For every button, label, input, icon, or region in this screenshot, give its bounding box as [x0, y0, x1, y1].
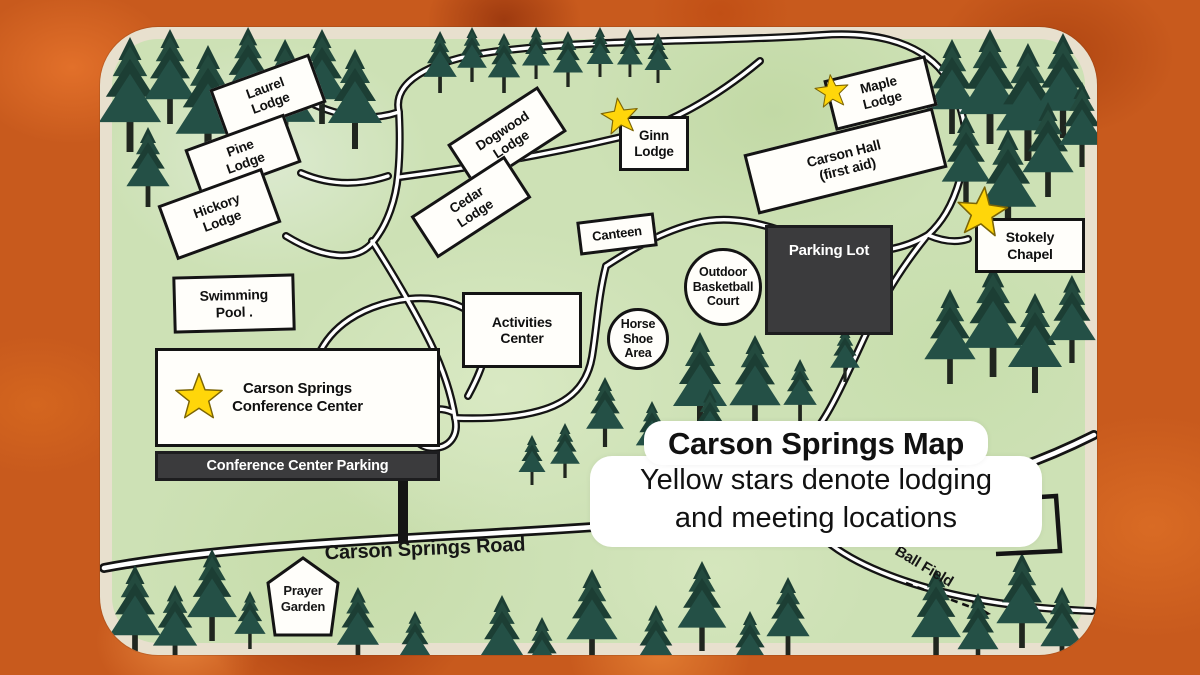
- tree-icon: [523, 617, 561, 655]
- carson-springs-map: Laurel Lodge Pine Lodge Hickory Lodge Do…: [100, 27, 1097, 655]
- legend-box: Carson Springs Map Yellow stars denote l…: [590, 421, 1042, 547]
- tree-icon: [234, 591, 265, 649]
- tree-icon: [678, 561, 727, 651]
- tree-icon: [153, 585, 197, 655]
- tree-icon: [731, 611, 769, 655]
- tree-icon: [729, 335, 780, 430]
- tree-icon: [924, 289, 975, 384]
- tree-icon: [617, 29, 643, 77]
- tree-icon: [942, 115, 991, 205]
- building-activities-center: Activities Center: [462, 292, 582, 368]
- tree-icon: [337, 587, 379, 655]
- building-conference-center-parking: Conference Center Parking: [155, 451, 440, 481]
- tree-icon: [635, 605, 677, 655]
- building-ginn-lodge: Ginn Lodge: [619, 116, 689, 171]
- tree-icon: [423, 31, 456, 93]
- legend-subtitle-line1: Yellow stars denote lodging: [598, 462, 1034, 500]
- tree-icon: [1040, 587, 1083, 655]
- building-parking-lot: Parking Lot: [765, 225, 893, 335]
- tree-icon: [553, 31, 583, 87]
- tree-icon: [328, 49, 382, 149]
- tree-icon: [109, 565, 160, 655]
- legend-title: Carson Springs Map: [644, 421, 988, 465]
- legend-subtitle: Yellow stars denote lodging and meeting …: [590, 456, 1042, 547]
- tree-icon: [457, 27, 487, 82]
- tree-icon: [587, 27, 614, 77]
- building-basketball-court: Outdoor Basketball Court: [684, 248, 762, 326]
- tree-icon: [519, 435, 546, 485]
- building-swimming-pool: Swimming Pool .: [172, 273, 295, 333]
- tree-icon: [566, 569, 617, 655]
- legend-subtitle-line2: and meeting locations: [598, 500, 1034, 538]
- tree-icon: [479, 595, 525, 655]
- building-horse-shoe-area: Horse Shoe Area: [607, 308, 669, 370]
- tree-icon: [830, 327, 860, 382]
- tree-icon: [1008, 293, 1062, 393]
- tree-icon: [783, 359, 816, 421]
- tree-icon: [766, 577, 809, 655]
- tree-icon: [187, 549, 237, 641]
- building-stokely-chapel: Stokely Chapel: [975, 218, 1085, 273]
- tree-icon: [398, 611, 433, 655]
- tree-icon: [996, 553, 1047, 648]
- building-prayer-garden: Prayer Garden: [272, 583, 334, 614]
- event-page-background: Laurel Lodge Pine Lodge Hickory Lodge Do…: [0, 0, 1200, 675]
- tree-icon: [550, 423, 580, 478]
- tree-icon: [488, 33, 520, 93]
- tree-icon: [522, 27, 550, 79]
- building-conference-center: Carson Springs Conference Center: [155, 348, 440, 447]
- tree-icon: [1048, 275, 1096, 363]
